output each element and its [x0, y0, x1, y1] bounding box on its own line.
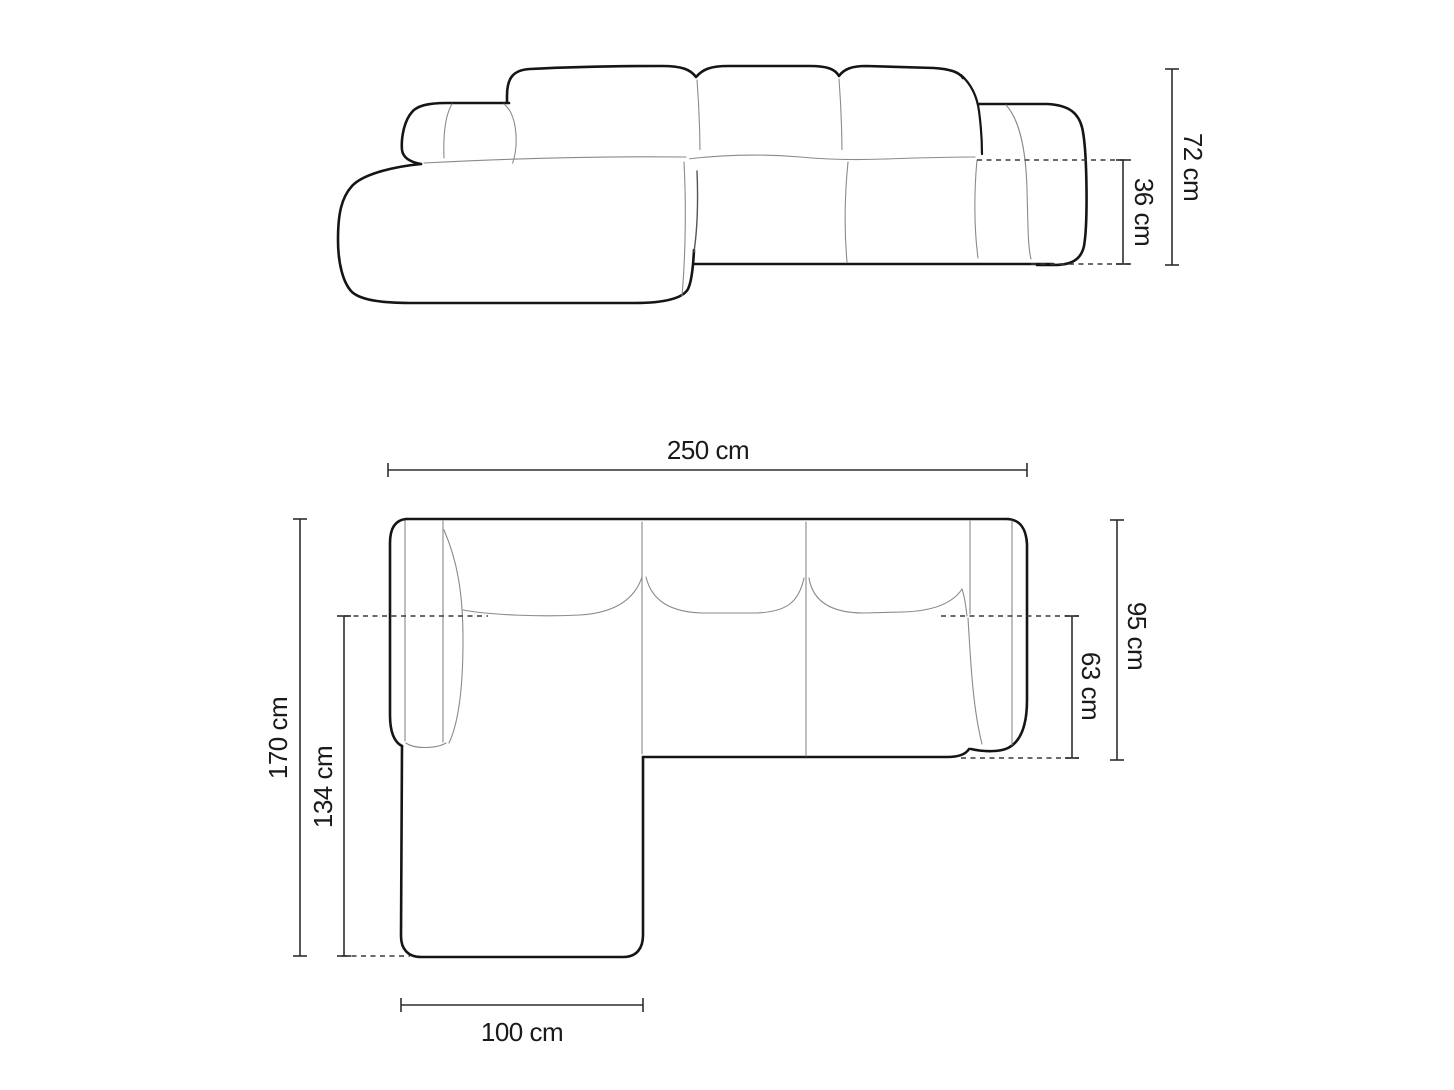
chaise-width-dimension: [401, 998, 643, 1012]
total-width-dimension: [388, 463, 1027, 477]
left-armrest-cushion-bottom: [406, 743, 446, 748]
seat2-corner-seam: [962, 589, 967, 616]
body-depth-label: 95 cm: [1124, 602, 1150, 670]
total-height-label: 72 cm: [1180, 133, 1206, 201]
seat2-back-cushion-front: [809, 578, 962, 613]
chaise-back-cushion-bulge: [444, 530, 463, 743]
total-width-label: 250 cm: [667, 437, 749, 463]
top-view-drawing: [293, 463, 1124, 1012]
seat-depth-label: 63 cm: [1078, 652, 1104, 720]
chaise-fill: [338, 158, 692, 303]
seat1-back-cushion-front: [646, 577, 804, 613]
chaise-outline: [401, 746, 643, 957]
chaise-width-label: 100 cm: [481, 1019, 563, 1045]
right-armrest-bulge: [968, 618, 982, 744]
chaise-inner-length-label: 134 cm: [310, 746, 336, 828]
total-depth-dimension: [293, 519, 307, 956]
sofa-diagram-svg: [0, 0, 1454, 1090]
right-armrest-fill: [974, 104, 1087, 266]
total-height-dimension: [1165, 69, 1179, 265]
total-depth-label: 170 cm: [265, 697, 291, 779]
left-armrest-outer: [390, 519, 406, 746]
seat-height-dimension: [1116, 160, 1130, 264]
seat-height-label: 36 cm: [1131, 178, 1157, 246]
chaise-back-cushion-front: [463, 577, 642, 616]
front-view-drawing: [338, 66, 1179, 303]
right-armrest-outer: [971, 519, 1027, 751]
dimension-diagram-canvas: 72 cm 36 cm 250 cm 170 cm 134 cm 95 cm 6…: [0, 0, 1454, 1090]
chaise-inner-length-dimension: [337, 616, 351, 956]
